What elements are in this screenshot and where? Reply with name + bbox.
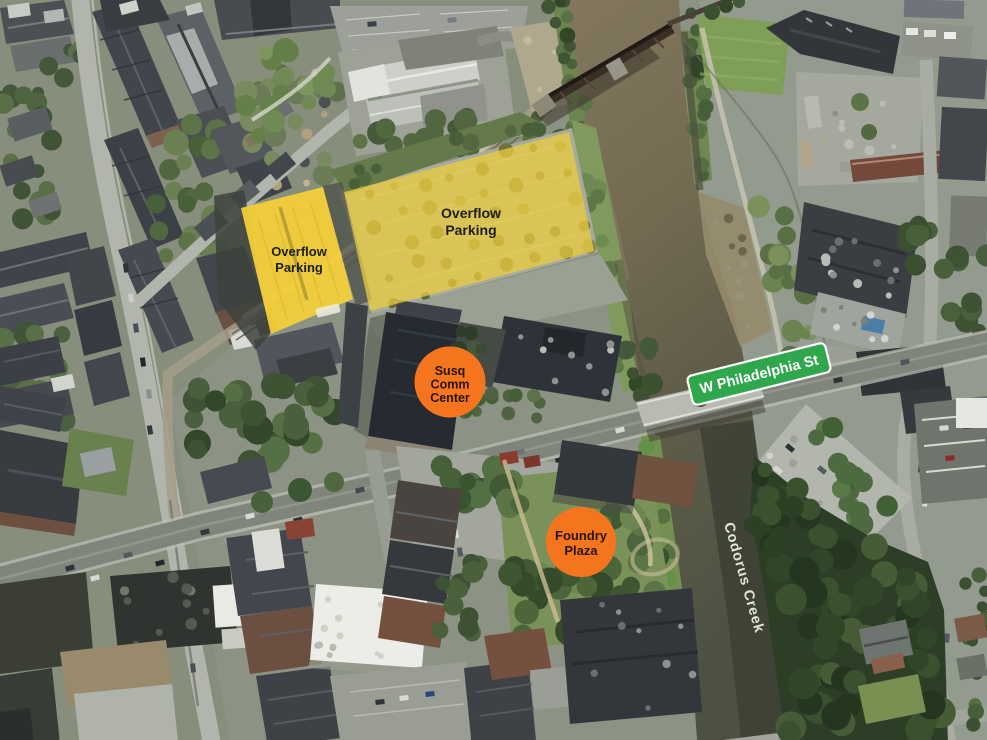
svg-text:Overflow: Overflow xyxy=(271,244,328,259)
svg-text:Comm: Comm xyxy=(431,378,470,392)
svg-text:Overflow: Overflow xyxy=(441,205,501,221)
svg-text:Center: Center xyxy=(430,391,470,405)
svg-text:Plaza: Plaza xyxy=(564,543,598,558)
svg-text:Foundry: Foundry xyxy=(555,528,608,543)
svg-text:Parking: Parking xyxy=(275,260,323,275)
svg-text:Susq: Susq xyxy=(435,364,466,378)
svg-text:Parking: Parking xyxy=(445,222,496,238)
